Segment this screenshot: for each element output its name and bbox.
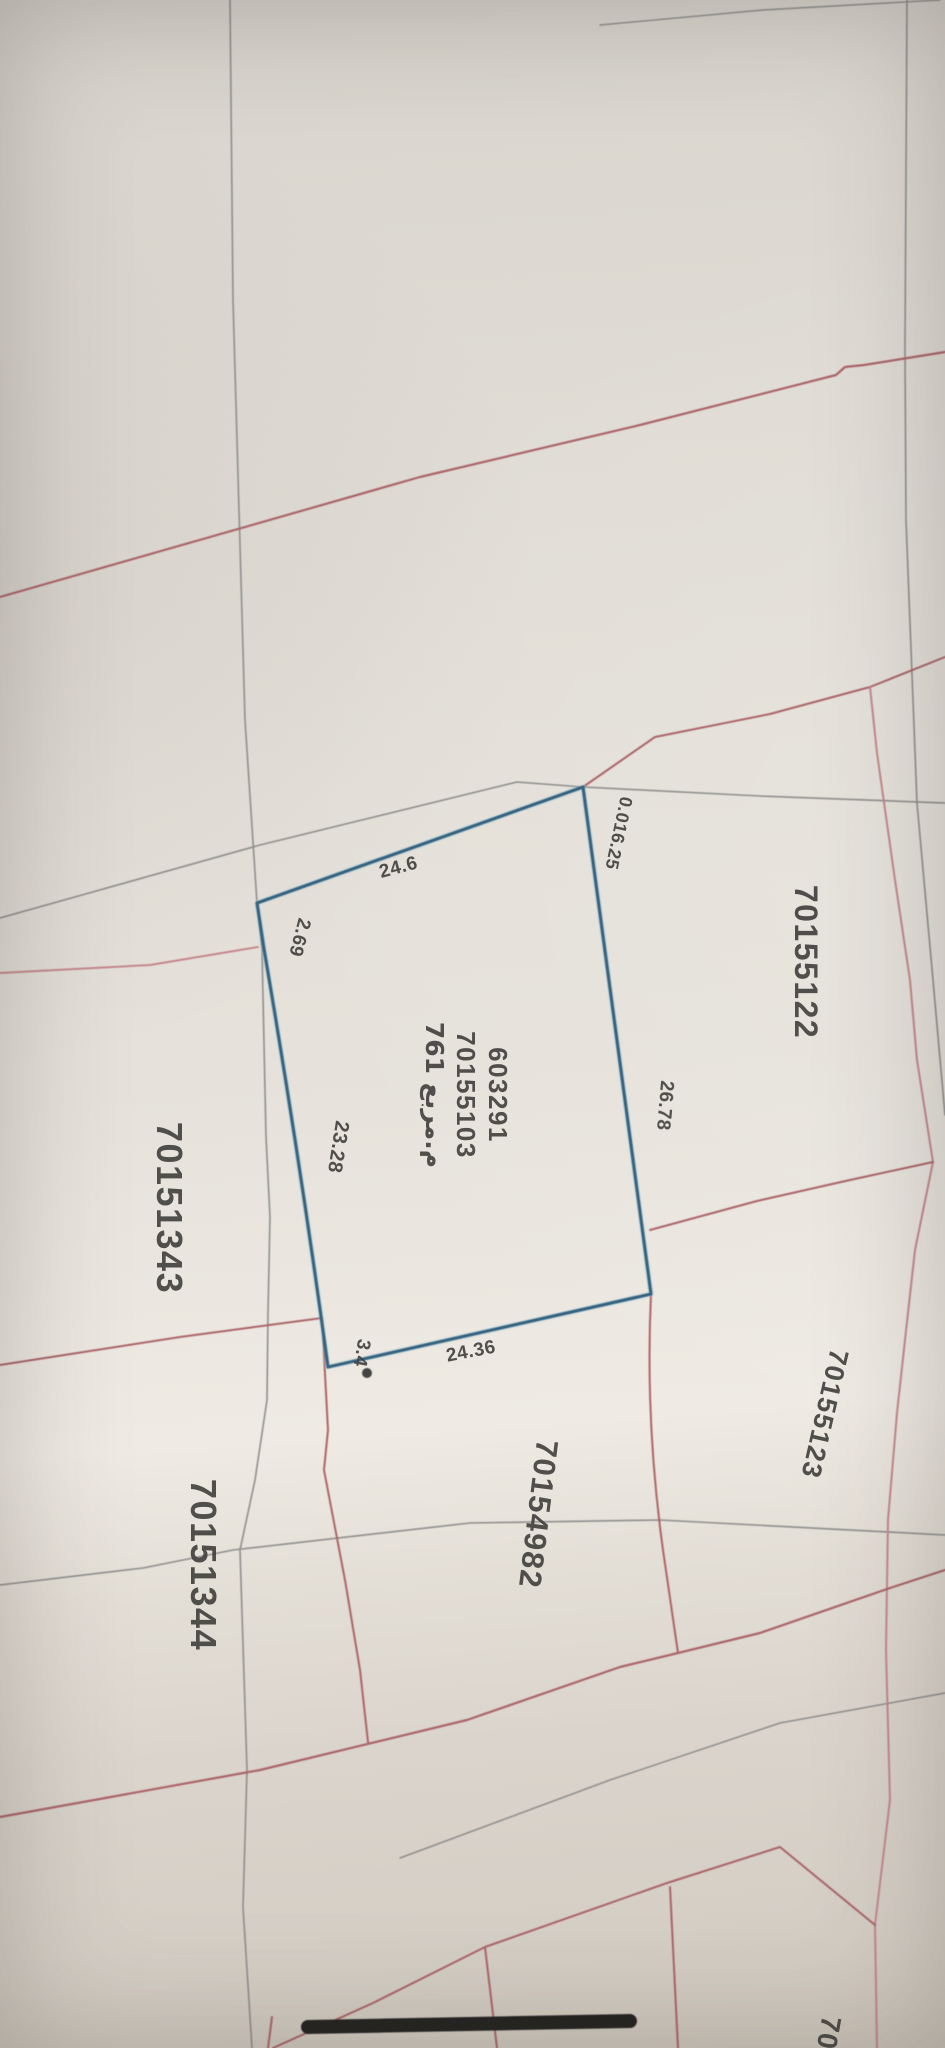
parcel-label-west: 70151343 bbox=[149, 1122, 190, 1294]
gray-line-top-corner bbox=[600, 0, 940, 25]
ink-dot bbox=[362, 1368, 372, 1378]
parcel-label-south: 70154982 bbox=[512, 1438, 565, 1591]
red-boundary-west-upper bbox=[0, 947, 258, 973]
red-boundary-northeast bbox=[583, 657, 945, 787]
red-boundary-west-descending bbox=[322, 1318, 368, 1742]
dim-west-edge-short: 2.69 bbox=[284, 916, 314, 959]
parcel-label-bottom-partial: 701 bbox=[808, 2014, 847, 2048]
parcel-id: 70155103 bbox=[451, 1031, 481, 1159]
red-boundary-top-diagonal bbox=[0, 352, 945, 597]
area-label: 761 م.مربع bbox=[419, 1022, 449, 1168]
dim-north-corner: 0.016.25 bbox=[601, 795, 636, 872]
red-boundary-bottom-stub bbox=[268, 2017, 272, 2048]
parcel-label-southeast: 70155123 bbox=[795, 1346, 854, 1482]
gray-line-west-vertical bbox=[230, 0, 270, 2048]
map-overlay: 70155122 70151343 70151344 70154982 7015… bbox=[0, 0, 945, 2048]
red-boundary-west-lower bbox=[0, 1318, 322, 1365]
gray-line-fold-upper bbox=[0, 1520, 945, 1585]
dim-southwest-edge: 23.28 bbox=[323, 1119, 353, 1174]
red-boundary-bottom-drop-1 bbox=[670, 1887, 678, 2048]
scale-bar bbox=[308, 2021, 630, 2027]
dim-east-edge: 26.78 bbox=[652, 1080, 677, 1132]
red-boundary-bottom-diagonal bbox=[0, 1570, 945, 1817]
cadastral-map-photo: 70155122 70151343 70151344 70154982 7015… bbox=[0, 0, 945, 2048]
red-boundary-bottom-drop-2 bbox=[485, 1947, 497, 2048]
parcel-label-east: 70155122 bbox=[788, 885, 824, 1039]
red-boundary-southeast-curve bbox=[650, 1294, 679, 1653]
plot-number: 603291 bbox=[483, 1047, 513, 1143]
gray-line-east-vertical bbox=[905, 0, 945, 1115]
dim-south-corner: 3.4 bbox=[349, 1337, 375, 1368]
parcel-label-southwest: 70151344 bbox=[183, 1479, 224, 1651]
red-boundary-east-branch bbox=[650, 1162, 933, 1230]
gray-line-fold-lower bbox=[400, 1693, 945, 1858]
labels: 70155122 70151343 70151344 70154982 7015… bbox=[149, 795, 854, 2048]
red-boundary-east-wiggly bbox=[870, 687, 933, 2048]
